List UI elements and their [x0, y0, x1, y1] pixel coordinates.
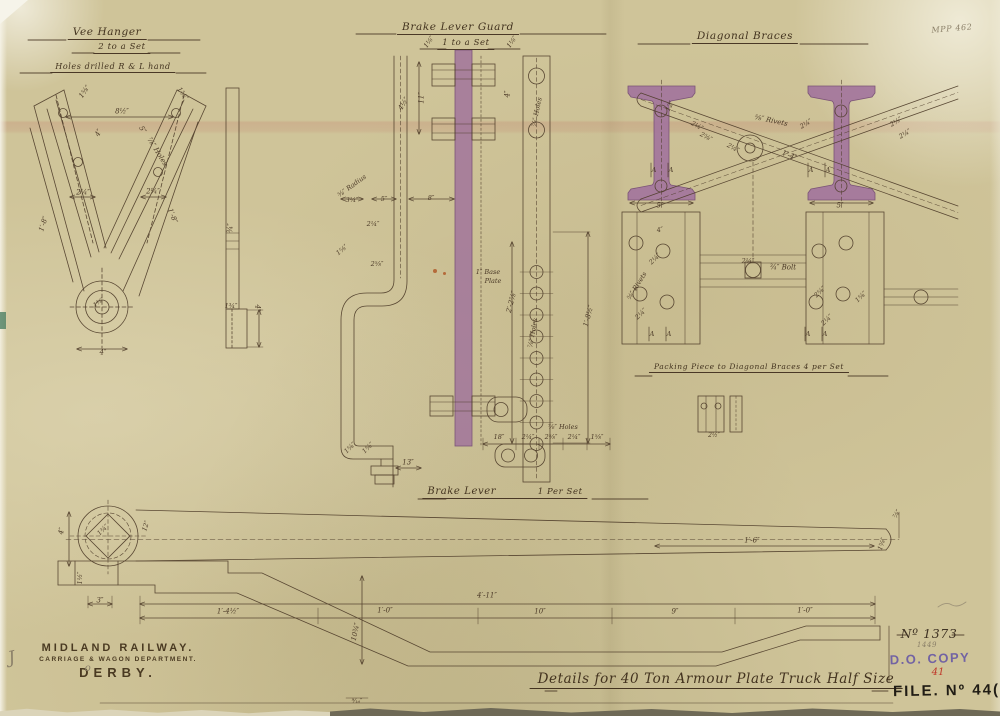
dimension-label: 2¼″ — [568, 434, 581, 441]
rust-spot — [443, 272, 446, 275]
dimension-label: 9″ — [671, 609, 678, 616]
brake-lever-guard-subtitle: 1 to a Set — [437, 38, 494, 50]
dimension-label: 5″ — [836, 203, 843, 210]
drawing-number-pencil: 1449 — [917, 641, 937, 649]
dimension-label: 1½″ — [77, 572, 84, 585]
dimension-label: ⅞″ Holes — [548, 424, 578, 431]
dimension-label: Plate — [485, 278, 502, 285]
dimension-label: 10″ — [534, 609, 546, 616]
dimension-label: 4″ — [99, 350, 106, 357]
company-name: MIDLAND RAILWAY. — [42, 642, 195, 654]
pencil-scribble — [938, 602, 966, 607]
dimension-label: 11″ — [419, 92, 426, 104]
dimension-label: 3¼″ — [346, 197, 359, 204]
dimension-label: 2¼″ — [742, 258, 755, 265]
dimension-label: 5″ — [381, 196, 388, 203]
dimension-label: 2½″ — [708, 433, 720, 439]
dimension-label: A — [823, 331, 828, 338]
dimension-label: A — [669, 167, 674, 174]
dimension-label: ⁹⁄₁₆″ — [352, 699, 362, 705]
vee-hanger-note: Holes drilled R & L hand — [50, 62, 175, 73]
dimension-label: 2¼″ — [522, 434, 535, 441]
dimension-label: 1′-6″ — [744, 538, 759, 545]
dimension-label: ¾″ — [228, 223, 235, 232]
dimension-label: 1′-0″ — [377, 608, 392, 615]
brake-lever-title-row: Brake Lever 1 Per Set — [422, 486, 587, 499]
diagonal-braces-title: Diagonal Braces — [692, 30, 798, 44]
dimension-label: A — [667, 331, 672, 338]
drawing-linework — [0, 0, 1000, 716]
dimension-label: 5″ — [656, 203, 663, 210]
dimension-label: A — [806, 331, 811, 338]
brake-lever-title: Brake Lever — [427, 486, 496, 497]
vee-hanger-subtitle: 2 to a Set — [93, 42, 150, 54]
dimension-label: A — [652, 167, 657, 174]
brake-lever-guard-title: Brake Lever Guard — [397, 21, 519, 35]
dimension-label: 2¼″ — [76, 190, 90, 197]
dimension-label: 2⅝″ — [371, 261, 384, 268]
dimension-label: 1′-0″ — [797, 608, 812, 615]
dimension-label: 4″ — [254, 304, 261, 311]
dimension-label: 4″ — [505, 90, 512, 97]
packing-piece-label: Packing Piece to Diagonal Braces 4 per S… — [649, 362, 849, 373]
dimension-label: 1′-4½″ — [217, 609, 239, 616]
dimension-label: 4″ — [58, 527, 66, 535]
dimension-label: 1¾″ — [225, 303, 238, 310]
dimension-label: 18″ — [494, 434, 505, 441]
dimension-label: 4″ — [656, 226, 664, 234]
rust-spot — [433, 269, 437, 273]
dimension-label: 2¼″ — [146, 189, 160, 196]
drawing-sheet: Vee Hanger 2 to a Set Holes drilled R & … — [0, 0, 1000, 716]
dimension-label: A — [650, 331, 655, 338]
dimension-label: A — [826, 167, 831, 174]
vee-hanger-title: Vee Hanger — [68, 26, 147, 40]
vee-hanger-drawing — [30, 88, 263, 349]
company-department: CARRIAGE & WAGON DEPARTMENT. — [39, 656, 197, 663]
dimension-label: 2⅝″ — [545, 434, 558, 441]
file-number-stamp: FILE. Nº 44(XX — [893, 681, 1000, 700]
dimension-label: ¾″ Bolt — [770, 265, 796, 272]
main-title: Details for 40 Ton Armour Plate Truck Ha… — [530, 671, 903, 689]
pencil-mark-o: o — [85, 663, 92, 674]
dimension-label: 4′-11″ — [477, 593, 497, 600]
drawing-number: Nº 1373 — [901, 626, 958, 641]
brake-lever-subtitle: 1 Per Set — [538, 487, 583, 497]
dimension-label: 1⅝″ — [591, 434, 604, 441]
dimension-label: 2¼″ — [367, 221, 380, 228]
dimension-label: 8½″ — [115, 109, 129, 116]
green-edge-mark — [0, 312, 6, 329]
dimension-label: 13″ — [402, 460, 414, 467]
dimension-label: A — [809, 167, 814, 174]
red-note: 41 — [932, 667, 945, 678]
dimension-label: 1″ Base — [476, 269, 500, 276]
dimension-label: 8″ — [428, 195, 435, 202]
dimension-label: 3″ — [96, 598, 103, 605]
do-copy-stamp: D.O. COPY — [889, 650, 970, 668]
